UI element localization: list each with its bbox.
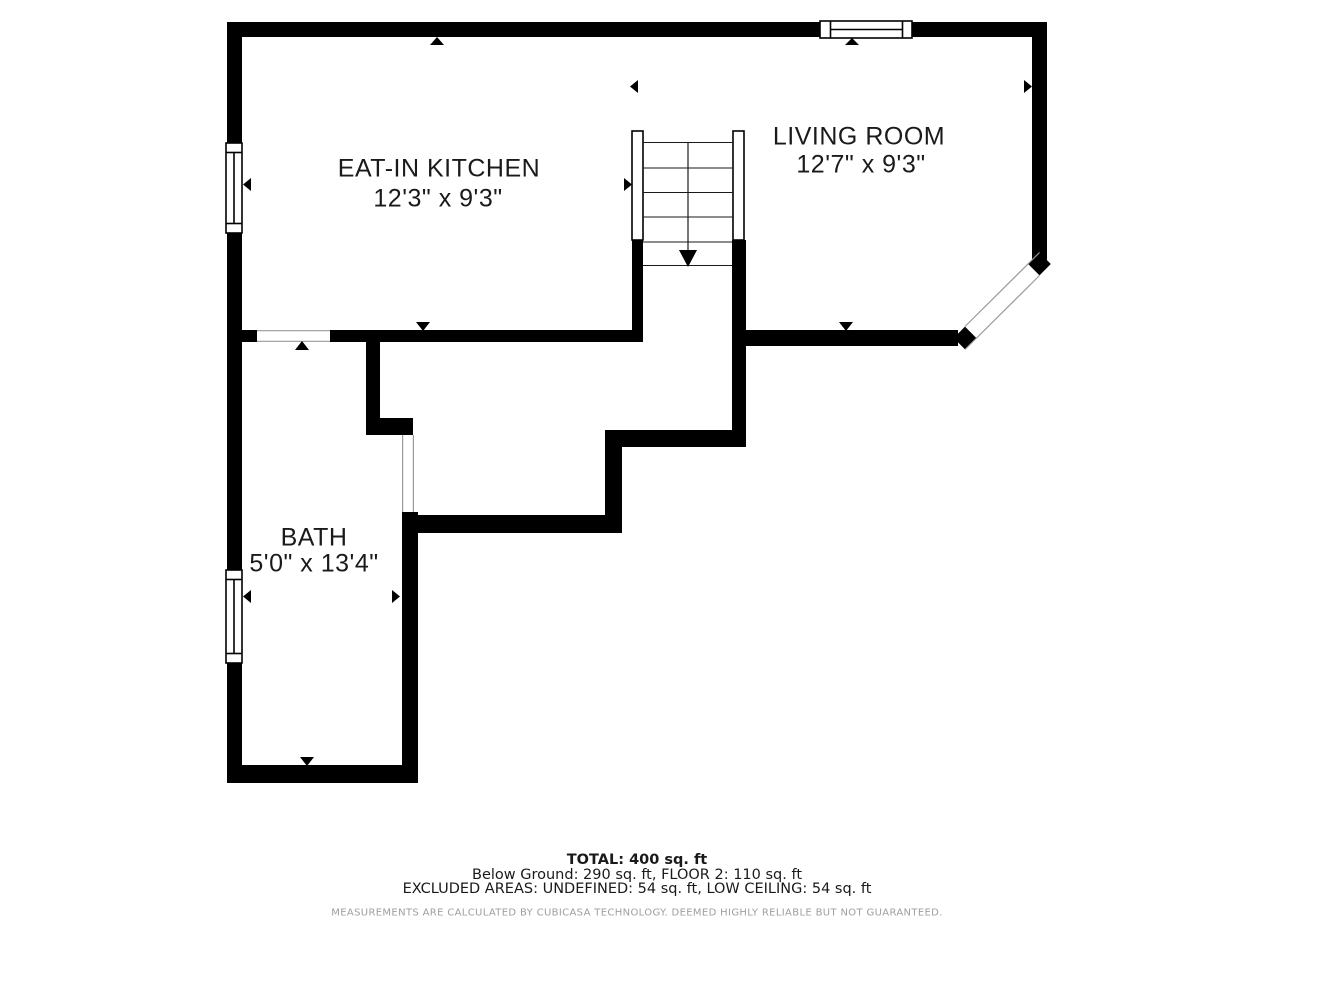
- staircase: [632, 131, 744, 267]
- room-name-kitchen: EAT-IN KITCHEN: [338, 155, 540, 184]
- stair-rail-left: [632, 131, 643, 240]
- room-name-bath: BATH: [281, 524, 348, 553]
- arrow-up-icon-bath-door: [295, 341, 309, 350]
- wall-hall-top: [605, 430, 746, 447]
- floorplan-canvas: EAT-IN KITCHEN 12'3" x 9'3" LIVING ROOM …: [0, 0, 1320, 989]
- arrow-right-icon-stair-left: [624, 178, 632, 191]
- window-kitchen-left: [226, 143, 242, 233]
- wall-bath-bottom: [227, 765, 418, 783]
- entry-door-diagonal-line: [965, 253, 1040, 327]
- wall-bath-right-lower: [402, 512, 418, 783]
- arrow-down-icon-living-bottom: [839, 322, 853, 331]
- room-dimensions-kitchen: 12'3" x 9'3": [373, 185, 502, 214]
- summary-excluded: EXCLUDED AREAS: UNDEFINED: 54 sq. ft, LO…: [403, 881, 872, 897]
- arrow-up-icon-kitchen-top: [430, 37, 444, 45]
- entry-door-diagonal-line: [965, 276, 1040, 350]
- wall-kitchen-bottom: [330, 330, 643, 342]
- summary-disclaimer: MEASUREMENTS ARE CALCULATED BY CUBICASA …: [331, 908, 942, 919]
- arrow-right-icon-bath-wall: [392, 590, 400, 603]
- room-dimensions-living: 12'7" x 9'3": [796, 151, 925, 180]
- wall-living-bottom: [732, 330, 958, 346]
- floorplan-drawing: [0, 0, 1320, 989]
- wall-stair-right: [732, 240, 746, 447]
- wall-left: [227, 22, 242, 783]
- window-bath-left: [226, 570, 242, 663]
- wall-right: [1032, 22, 1047, 262]
- arrow-down-icon-bath-bottom: [300, 757, 314, 766]
- wall-kitchen-bottom-stub: [242, 330, 257, 342]
- summary-total: TOTAL: 400 sq. ft: [567, 852, 707, 868]
- wall-top: [227, 22, 1047, 37]
- arrow-left-icon-bath-window: [243, 590, 251, 603]
- stair-down-arrow-icon: [679, 250, 697, 267]
- wall-bath-step: [366, 418, 413, 435]
- arrow-up-icon-living-window: [845, 38, 859, 45]
- room-name-living: LIVING ROOM: [773, 123, 945, 152]
- arrow-down-icon-kitchen-bottom: [416, 322, 430, 331]
- room-dimensions-bath: 5'0" x 13'4": [249, 550, 378, 579]
- wall-stair-left: [632, 240, 643, 342]
- arrow-left-icon-kitchen-window: [243, 178, 251, 191]
- stair-rail-right: [733, 131, 744, 240]
- window-living-top: [820, 21, 912, 38]
- arrow-right-icon-living-wall: [1024, 80, 1032, 93]
- wall-right-door-tip: [1028, 253, 1051, 276]
- arrow-left-icon-opening: [630, 80, 638, 93]
- wall-hall-bottom: [402, 515, 622, 533]
